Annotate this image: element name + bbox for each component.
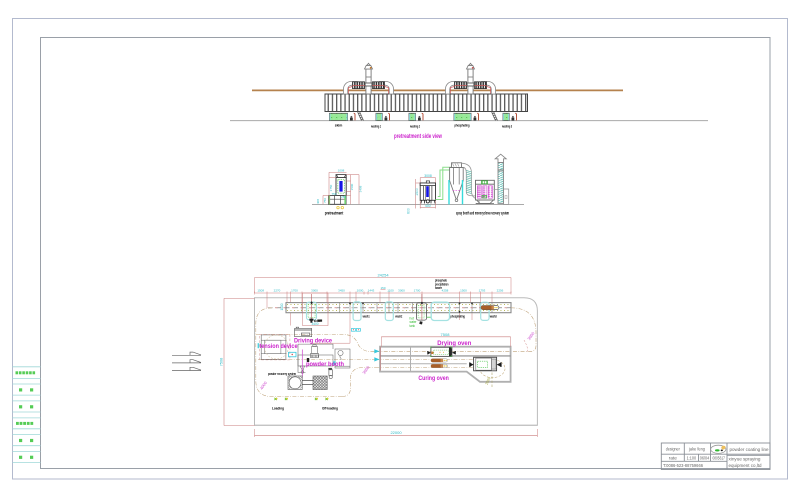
svg-text:equipment co,ltd: equipment co,ltd: [729, 463, 762, 468]
svg-text:1443: 1443: [368, 289, 375, 293]
svg-text:designer: designer: [666, 446, 680, 451]
svg-text:powder recovery system: powder recovery system: [268, 372, 296, 376]
svg-text:xinyue spraying: xinyue spraying: [729, 457, 761, 462]
svg-text:1500: 1500: [415, 188, 419, 196]
svg-text:1008: 1008: [338, 169, 345, 173]
svg-text:3400: 3400: [311, 322, 318, 326]
svg-text:1793: 1793: [479, 289, 486, 293]
svg-text:washing 2: washing 2: [409, 123, 420, 128]
svg-text:600: 600: [407, 208, 411, 214]
svg-text:Off-loading: Off-loading: [322, 406, 338, 411]
svg-text:1700: 1700: [414, 289, 421, 293]
svg-text:spray booth and monocyclone re: spray booth and monocyclone recovery sys…: [456, 210, 509, 215]
svg-text:phosphating: phosphating: [455, 122, 470, 127]
svg-text:1500: 1500: [460, 289, 467, 293]
svg-text:pretreatment: pretreatment: [325, 210, 344, 215]
svg-text:3450: 3450: [338, 289, 345, 293]
svg-text:1000: 1000: [280, 303, 284, 310]
svg-text:750: 750: [331, 192, 336, 196]
svg-text:3008: 3008: [424, 174, 432, 178]
svg-text:2256: 2256: [497, 289, 504, 293]
svg-text:phosphating: phosphating: [450, 314, 465, 318]
svg-text:3000: 3000: [398, 289, 405, 293]
svg-text:wash3: wash3: [489, 314, 497, 318]
svg-text:06/04: 06/04: [700, 455, 710, 460]
svg-text:Loading: Loading: [272, 406, 284, 411]
svg-text:7508: 7508: [441, 332, 451, 337]
svg-text:3408: 3408: [359, 185, 363, 192]
svg-text:2270: 2270: [274, 289, 281, 293]
svg-text:1750: 1750: [329, 184, 333, 191]
svg-text:jake feng: jake feng: [688, 446, 705, 451]
svg-text:1500: 1500: [350, 183, 354, 190]
svg-text:washing 1: washing 1: [370, 123, 381, 128]
svg-text:rate: rate: [669, 455, 677, 460]
svg-text:tank: tank: [410, 324, 416, 328]
svg-text:750: 750: [323, 198, 327, 203]
svg-text:skim: skim: [335, 122, 343, 127]
svg-text:Driving device: Driving device: [294, 338, 333, 344]
svg-text:powder booth: powder booth: [306, 362, 344, 368]
svg-text:tower: tower: [435, 286, 442, 290]
svg-text:Drying oven: Drying oven: [437, 340, 471, 347]
svg-text:0805617: 0805617: [712, 455, 725, 460]
svg-text:tension device: tension device: [260, 344, 299, 350]
svg-text:1100: 1100: [387, 289, 394, 293]
svg-text:1000: 1000: [357, 289, 364, 293]
svg-text:wash2: wash2: [395, 314, 403, 318]
svg-text:1:100: 1:100: [687, 455, 697, 460]
svg-text:washing 3: washing 3: [501, 123, 512, 128]
svg-text:3000: 3000: [311, 289, 318, 293]
svg-text:400: 400: [425, 204, 431, 208]
svg-text:pretreatment side view: pretreatment side view: [394, 134, 442, 140]
svg-text:1508: 1508: [257, 289, 264, 293]
svg-text:250: 250: [341, 195, 346, 199]
svg-text:Curing oven: Curing oven: [418, 375, 449, 382]
svg-text:150: 150: [380, 286, 385, 290]
svg-text:4258: 4258: [442, 289, 449, 293]
svg-text:powder coating line: powder coating line: [730, 447, 769, 452]
svg-text:24254: 24254: [377, 272, 389, 277]
svg-text:1700: 1700: [291, 289, 298, 293]
svg-text:wash1: wash1: [362, 314, 370, 318]
svg-text:22000: 22000: [390, 430, 402, 435]
svg-text:T:0086-523-88759666: T:0086-523-88759666: [663, 463, 703, 468]
svg-text:408: 408: [316, 199, 320, 204]
svg-text:7508: 7508: [220, 358, 224, 366]
